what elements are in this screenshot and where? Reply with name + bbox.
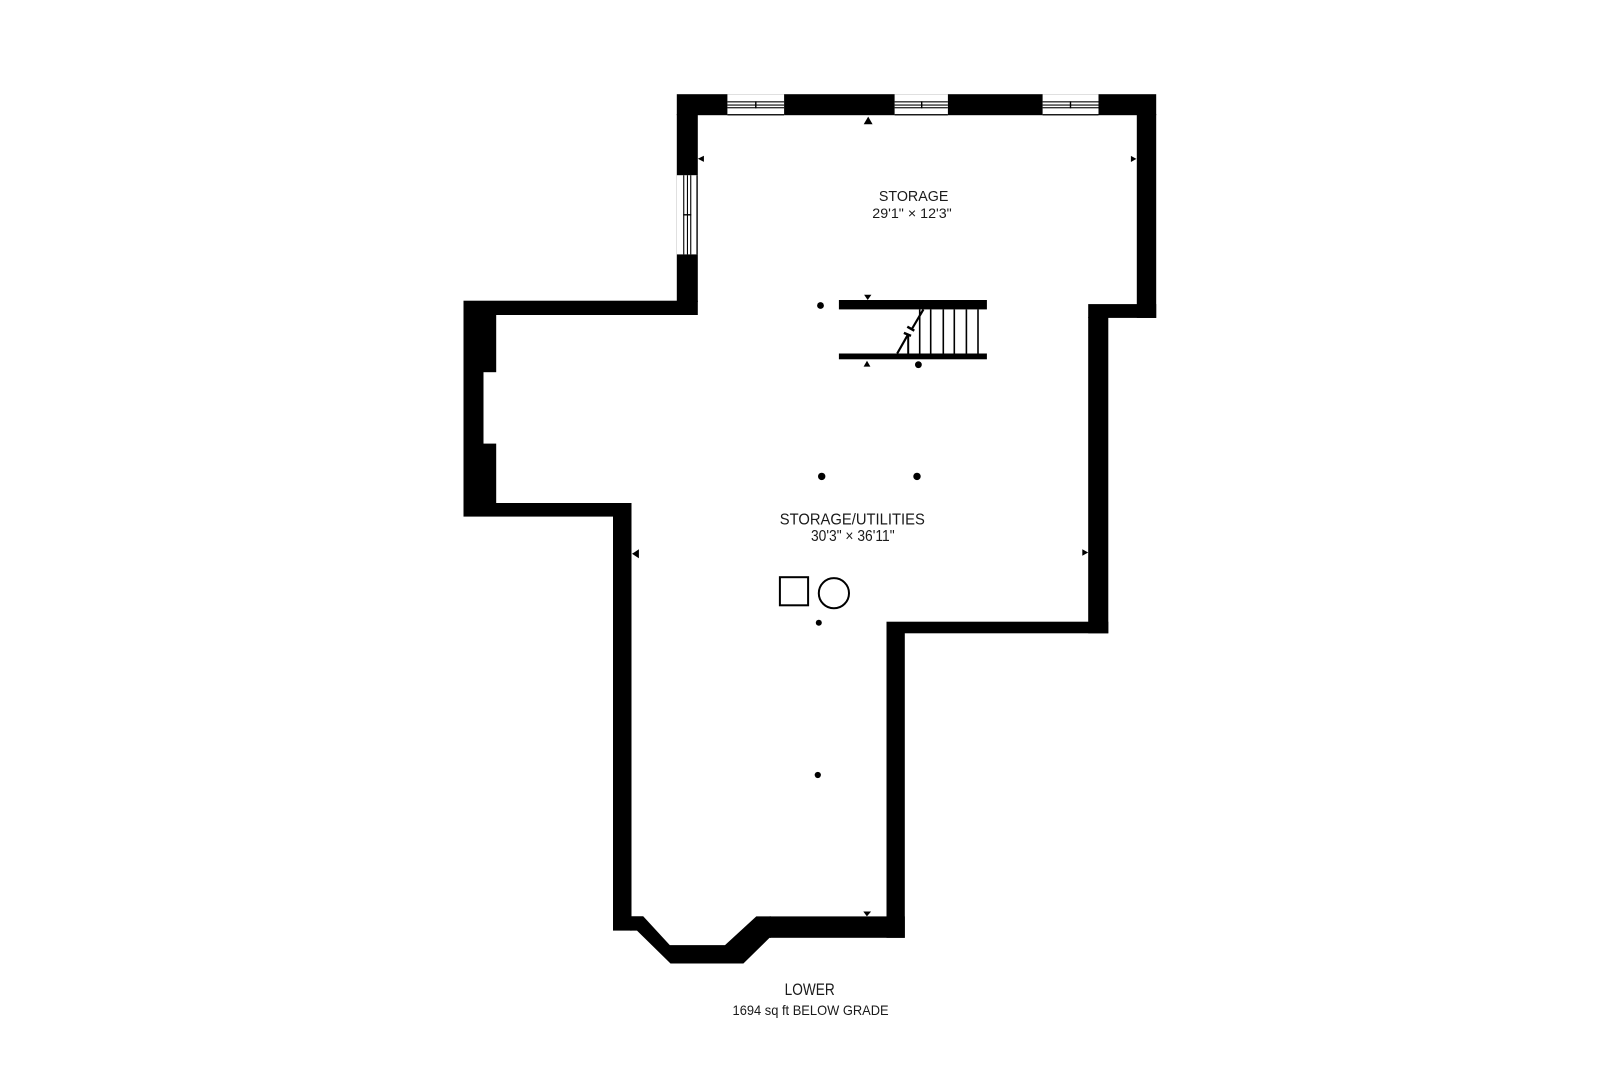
svg-text:STORAGE/UTILITIES: STORAGE/UTILITIES [780,512,925,529]
svg-text:LOWER: LOWER [785,980,835,999]
svg-text:29'1" × 12'3": 29'1" × 12'3" [872,205,952,221]
svg-text:30'3" × 36'11": 30'3" × 36'11" [811,528,895,545]
svg-text:1694 sq ft BELOW GRADE: 1694 sq ft BELOW GRADE [733,1002,889,1018]
svg-text:STORAGE: STORAGE [879,189,949,205]
